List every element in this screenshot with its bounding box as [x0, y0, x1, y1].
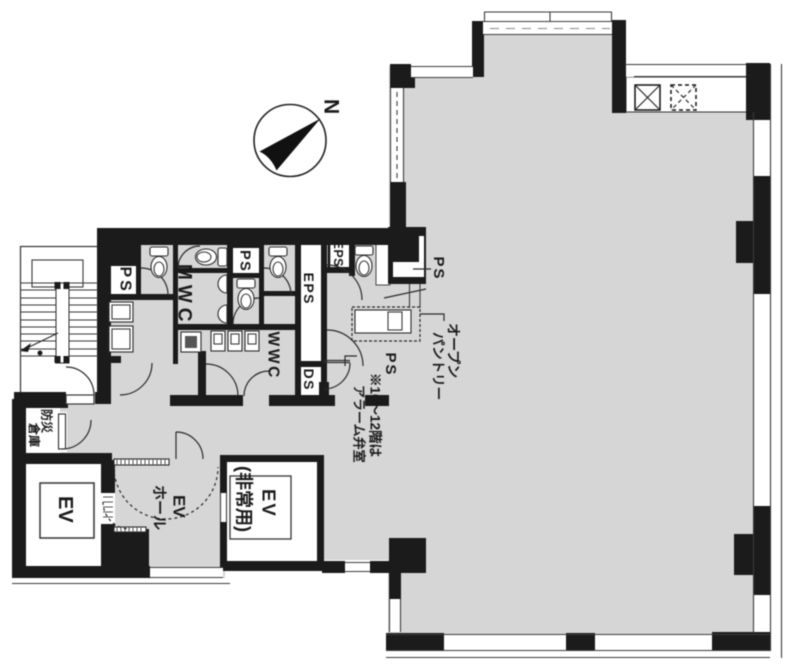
svg-text:EV: EV — [259, 489, 280, 518]
svg-text:PS: PS — [237, 250, 253, 272]
svg-text:ホール: ホール — [151, 485, 168, 530]
svg-text:N: N — [320, 99, 343, 114]
svg-text:WWC: WWC — [265, 332, 282, 381]
svg-text:(非常用): (非常用) — [234, 466, 255, 532]
svg-text:EPS: EPS — [331, 241, 345, 268]
svg-text:※10〜12階は: ※10〜12階は — [368, 373, 384, 458]
svg-text:PS: PS — [382, 353, 399, 377]
svg-text:MWC: MWC — [174, 264, 195, 326]
svg-text:EPS: EPS — [301, 273, 317, 306]
svg-text:パントリー: パントリー — [431, 332, 446, 400]
svg-text:PS: PS — [430, 257, 447, 281]
svg-text:アラーム弁室: アラーム弁室 — [352, 385, 367, 463]
svg-text:PS: PS — [117, 267, 134, 294]
svg-text:倉庫: 倉庫 — [27, 422, 42, 447]
svg-text:オープン: オープン — [446, 323, 462, 378]
svg-text:DS: DS — [301, 369, 317, 391]
svg-text:EV: EV — [54, 496, 76, 523]
svg-text:EV: EV — [170, 495, 189, 518]
